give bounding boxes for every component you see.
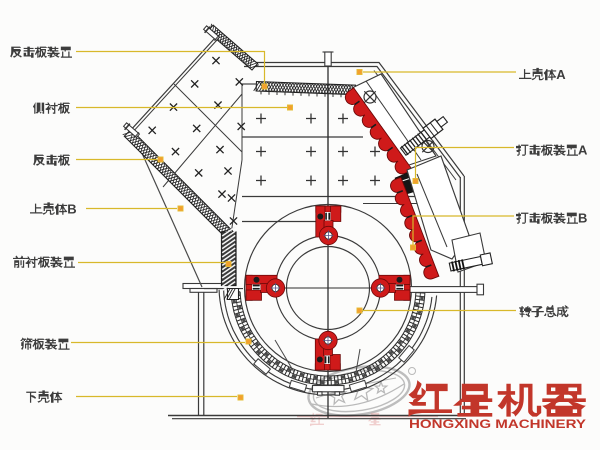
- svg-text:B: B: [578, 211, 587, 226]
- svg-text:B: B: [67, 202, 76, 217]
- svg-text:A: A: [578, 143, 588, 158]
- svg-text:A: A: [556, 67, 566, 82]
- svg-text:HONGXING MACHINERY: HONGXING MACHINERY: [409, 417, 586, 431]
